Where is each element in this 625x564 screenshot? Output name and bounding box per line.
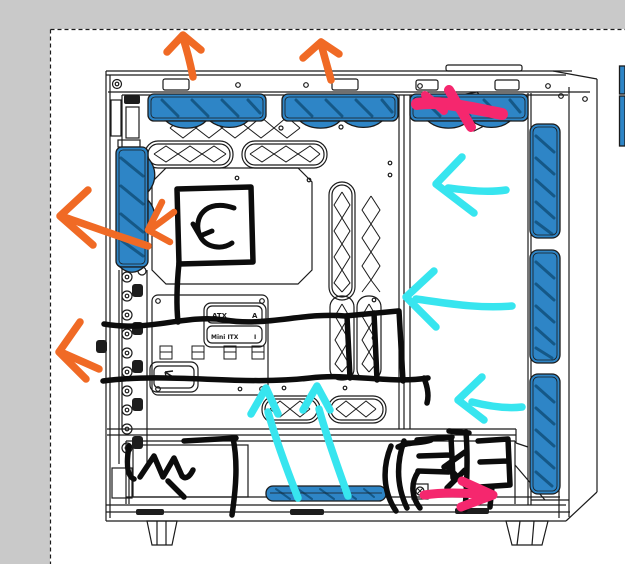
front-fan-2 xyxy=(530,250,560,363)
itx-label: Mini ITX xyxy=(211,334,239,341)
atx-key-label: A xyxy=(252,312,258,320)
edge-fan-sliver xyxy=(620,66,625,146)
editor-canvas[interactable]: ATX A Mini ITX I xyxy=(0,0,625,564)
front-fan-1 xyxy=(530,124,560,238)
itx-key-label: I xyxy=(254,334,256,341)
marker-square-connector xyxy=(177,263,179,322)
